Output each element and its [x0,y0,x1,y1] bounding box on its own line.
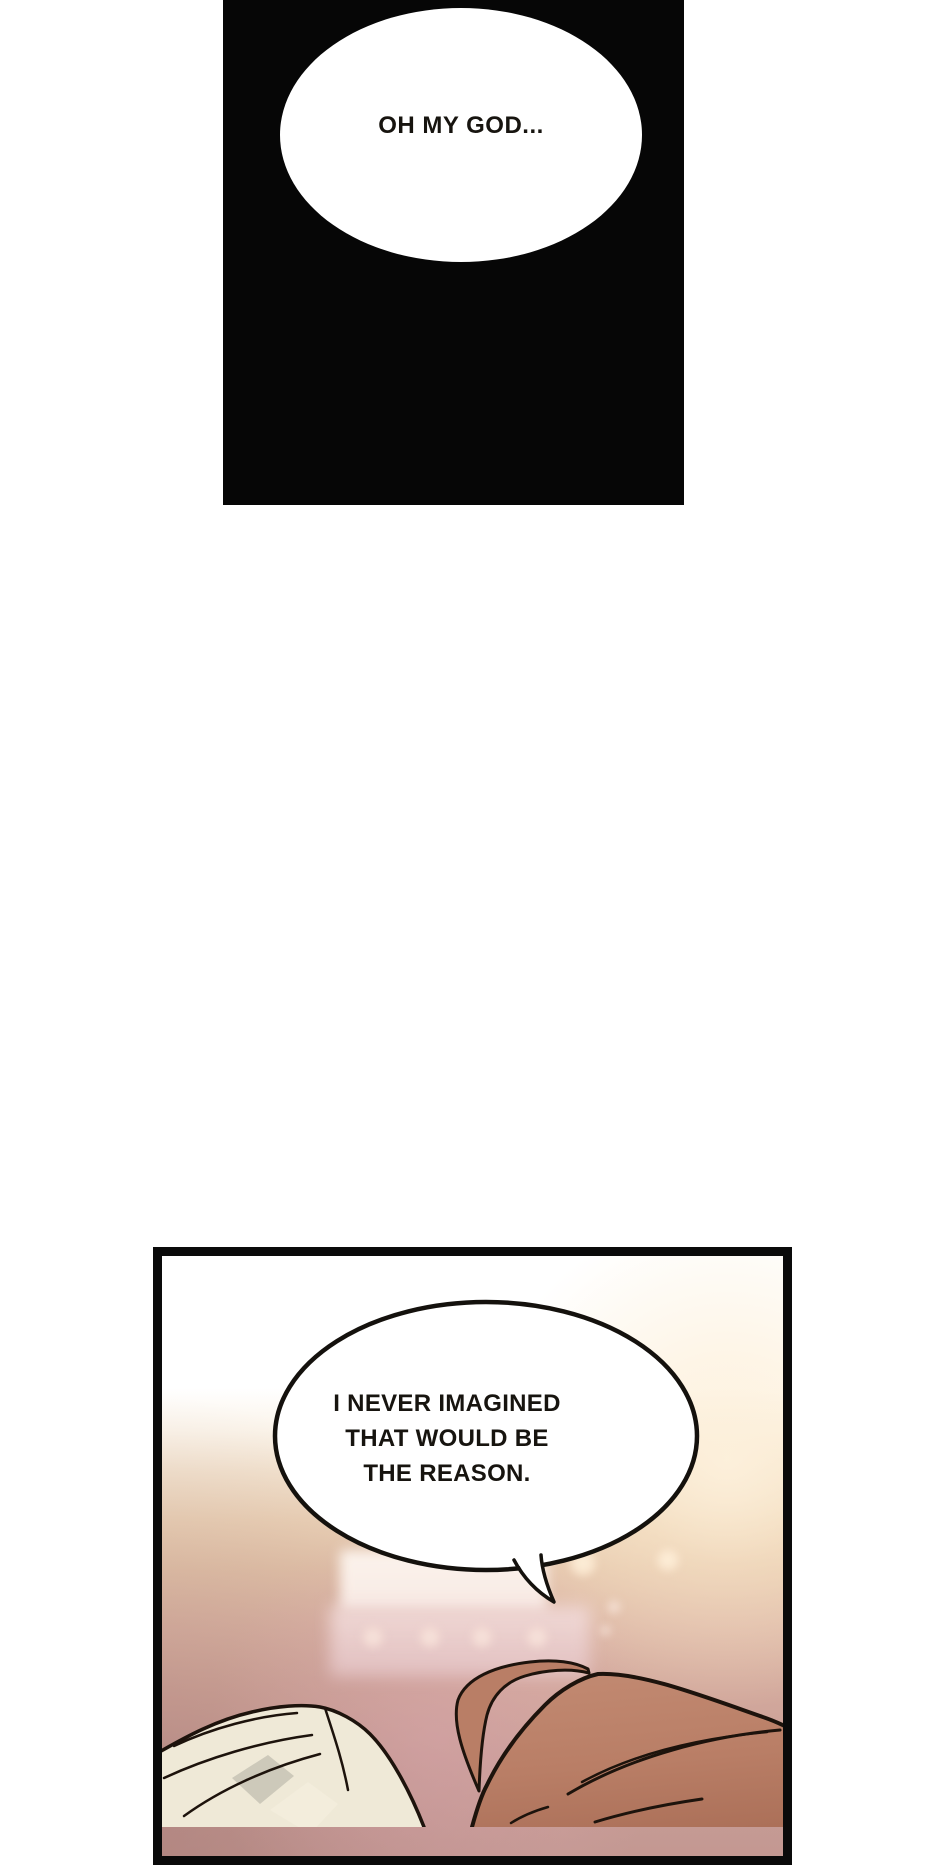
panel-bottom: I NEVER IMAGINED THAT WOULD BE THE REASO… [153,1247,792,1865]
speech-text-top: OH MY GOD... [378,112,544,158]
speech-text-line: THAT WOULD BE [297,1421,597,1456]
hair [472,1674,783,1827]
scene-art [162,1256,783,1827]
speech-text-line: THE REASON. [297,1456,597,1491]
speech-text-line: I NEVER IMAGINED [297,1386,597,1421]
speech-bubble-top: OH MY GOD... [280,8,642,262]
panel-top: OH MY GOD... [223,0,684,505]
speech-text-bottom: I NEVER IMAGINED THAT WOULD BE THE REASO… [297,1386,597,1491]
